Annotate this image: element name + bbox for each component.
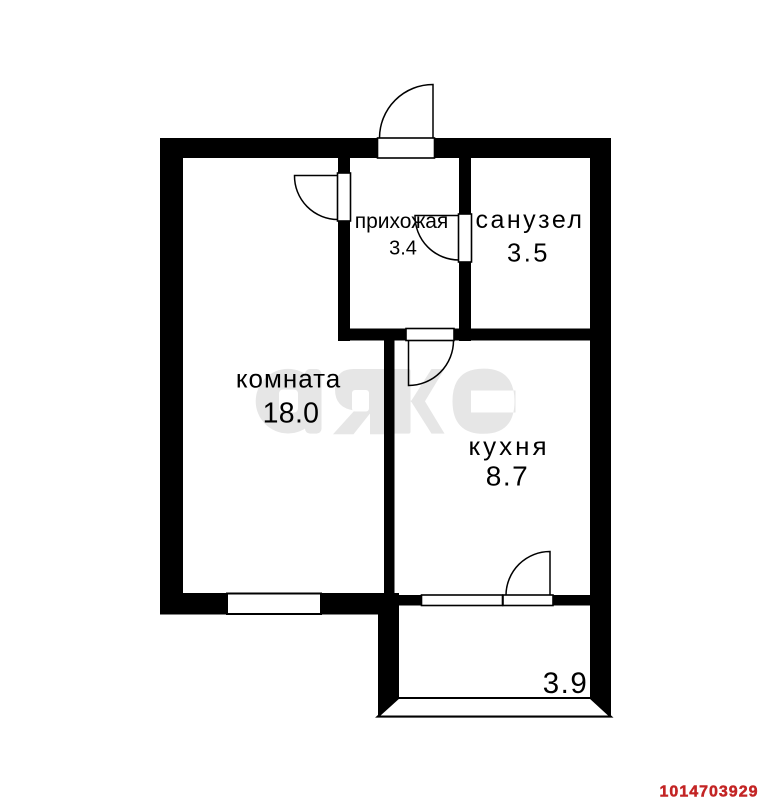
svg-text:3.9: 3.9 [543, 667, 589, 700]
svg-text:8.7: 8.7 [486, 461, 529, 492]
svg-text:3.5: 3.5 [507, 240, 550, 268]
svg-text:комната: комната [236, 364, 341, 394]
svg-text:3.4: 3.4 [389, 238, 417, 260]
svg-text:прихожая: прихожая [355, 210, 449, 233]
svg-text:санузел: санузел [475, 206, 584, 234]
svg-text:1014703929: 1014703929 [660, 784, 759, 801]
svg-text:кухня: кухня [468, 431, 549, 461]
svg-text:18.0: 18.0 [263, 398, 320, 430]
